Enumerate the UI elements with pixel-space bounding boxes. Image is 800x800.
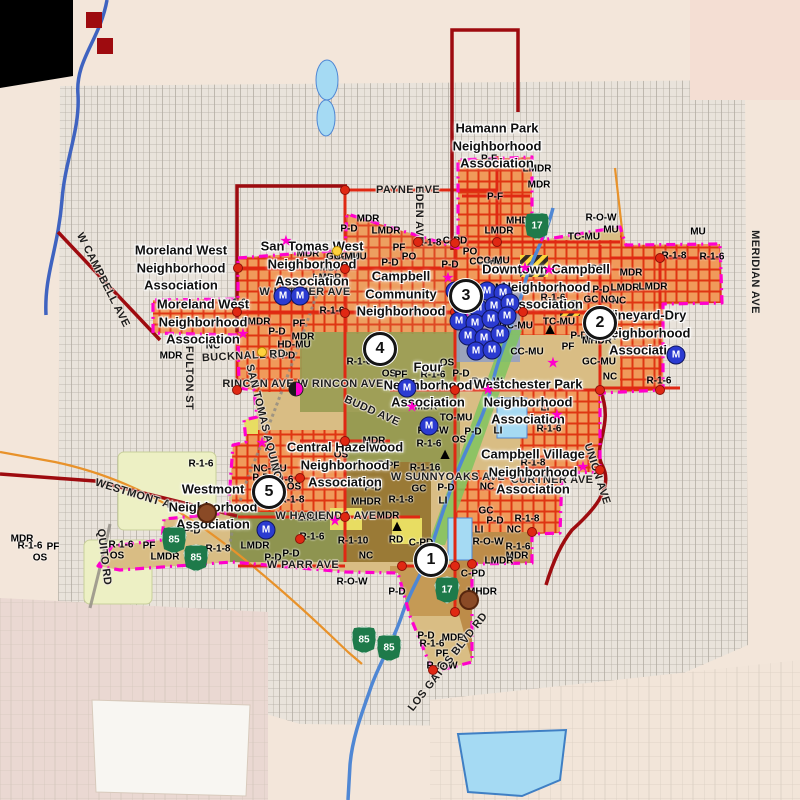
star-marker: ★ <box>542 263 555 278</box>
hazard-triangle-marker: ▲ <box>542 322 558 338</box>
area-number-marker[interactable]: 3 <box>449 279 483 313</box>
signal-dot <box>340 436 350 446</box>
school-dot <box>332 246 342 256</box>
signal-dot <box>450 561 460 571</box>
star-marker: ★ <box>550 408 563 423</box>
highway-shield-85: 85 <box>162 527 187 554</box>
signal-dot <box>655 253 665 263</box>
signal-dot <box>340 308 350 318</box>
signal-dot <box>655 385 665 395</box>
star-marker: ★ <box>546 356 559 371</box>
highway-shield-17: 17 <box>435 577 460 604</box>
signal-dot <box>450 238 460 248</box>
signal-dot <box>295 534 305 544</box>
signal-dot <box>527 527 537 537</box>
m-marker[interactable]: M <box>257 521 276 540</box>
signal-dot <box>450 385 460 395</box>
m-marker[interactable]: M <box>667 346 686 365</box>
signal-dot <box>595 385 605 395</box>
star-marker: ★ <box>481 383 494 398</box>
star-marker: ★ <box>576 460 589 475</box>
signal-dot <box>397 561 407 571</box>
star-marker: ★ <box>236 327 249 342</box>
highway-shield-85: 85 <box>352 627 377 654</box>
signal-dot <box>340 185 350 195</box>
highway-shield-17: 17 <box>525 213 550 240</box>
signal-dot <box>467 559 477 569</box>
area-number-marker[interactable]: 2 <box>583 306 617 340</box>
signal-dot <box>232 385 242 395</box>
signal-dot <box>450 607 460 617</box>
signal-dot <box>295 473 305 483</box>
signal-dot <box>233 263 243 273</box>
star-marker: ★ <box>405 400 418 415</box>
signal-dot <box>595 465 605 475</box>
m-marker[interactable]: M <box>398 379 417 398</box>
m-marker[interactable]: M <box>420 417 439 436</box>
signal-dot <box>340 264 350 274</box>
hazard-triangle-marker: ▲ <box>389 519 405 535</box>
landmark-marker[interactable] <box>197 503 217 523</box>
signal-dot <box>518 307 528 317</box>
star-marker: ★ <box>255 436 268 451</box>
star-marker: ★ <box>518 261 531 276</box>
signal-dot <box>232 307 242 317</box>
signal-dot <box>428 665 438 675</box>
m-marker[interactable]: M <box>483 341 502 360</box>
star-marker: ★ <box>279 234 292 249</box>
highway-shield-85: 85 <box>184 545 209 572</box>
signal-dot <box>413 237 423 247</box>
highway-shield-85: 85 <box>377 635 402 662</box>
m-marker[interactable]: M <box>291 287 310 306</box>
m-marker[interactable]: M <box>498 307 517 326</box>
hazard-triangle-marker: ▲ <box>437 447 453 463</box>
signal-dot <box>492 237 502 247</box>
landmark-marker[interactable] <box>459 590 479 610</box>
area-number-marker[interactable]: 5 <box>252 475 286 509</box>
markers-layer: ★★★★★★★★★★★★★★▲▲▲MMMMMMMMMMMMMMMMMMMMMMM… <box>0 0 800 800</box>
area-number-marker[interactable]: 1 <box>414 543 448 577</box>
star-marker: ★ <box>328 514 341 529</box>
area-number-marker[interactable]: 4 <box>363 332 397 366</box>
school-dot <box>257 347 267 357</box>
pie-marker <box>289 382 304 397</box>
campbell-zoning-map[interactable]: P-FLMDRMDRP-FMHDRLMDRR-O-WMUTC-MUMDRP-DL… <box>0 0 800 800</box>
